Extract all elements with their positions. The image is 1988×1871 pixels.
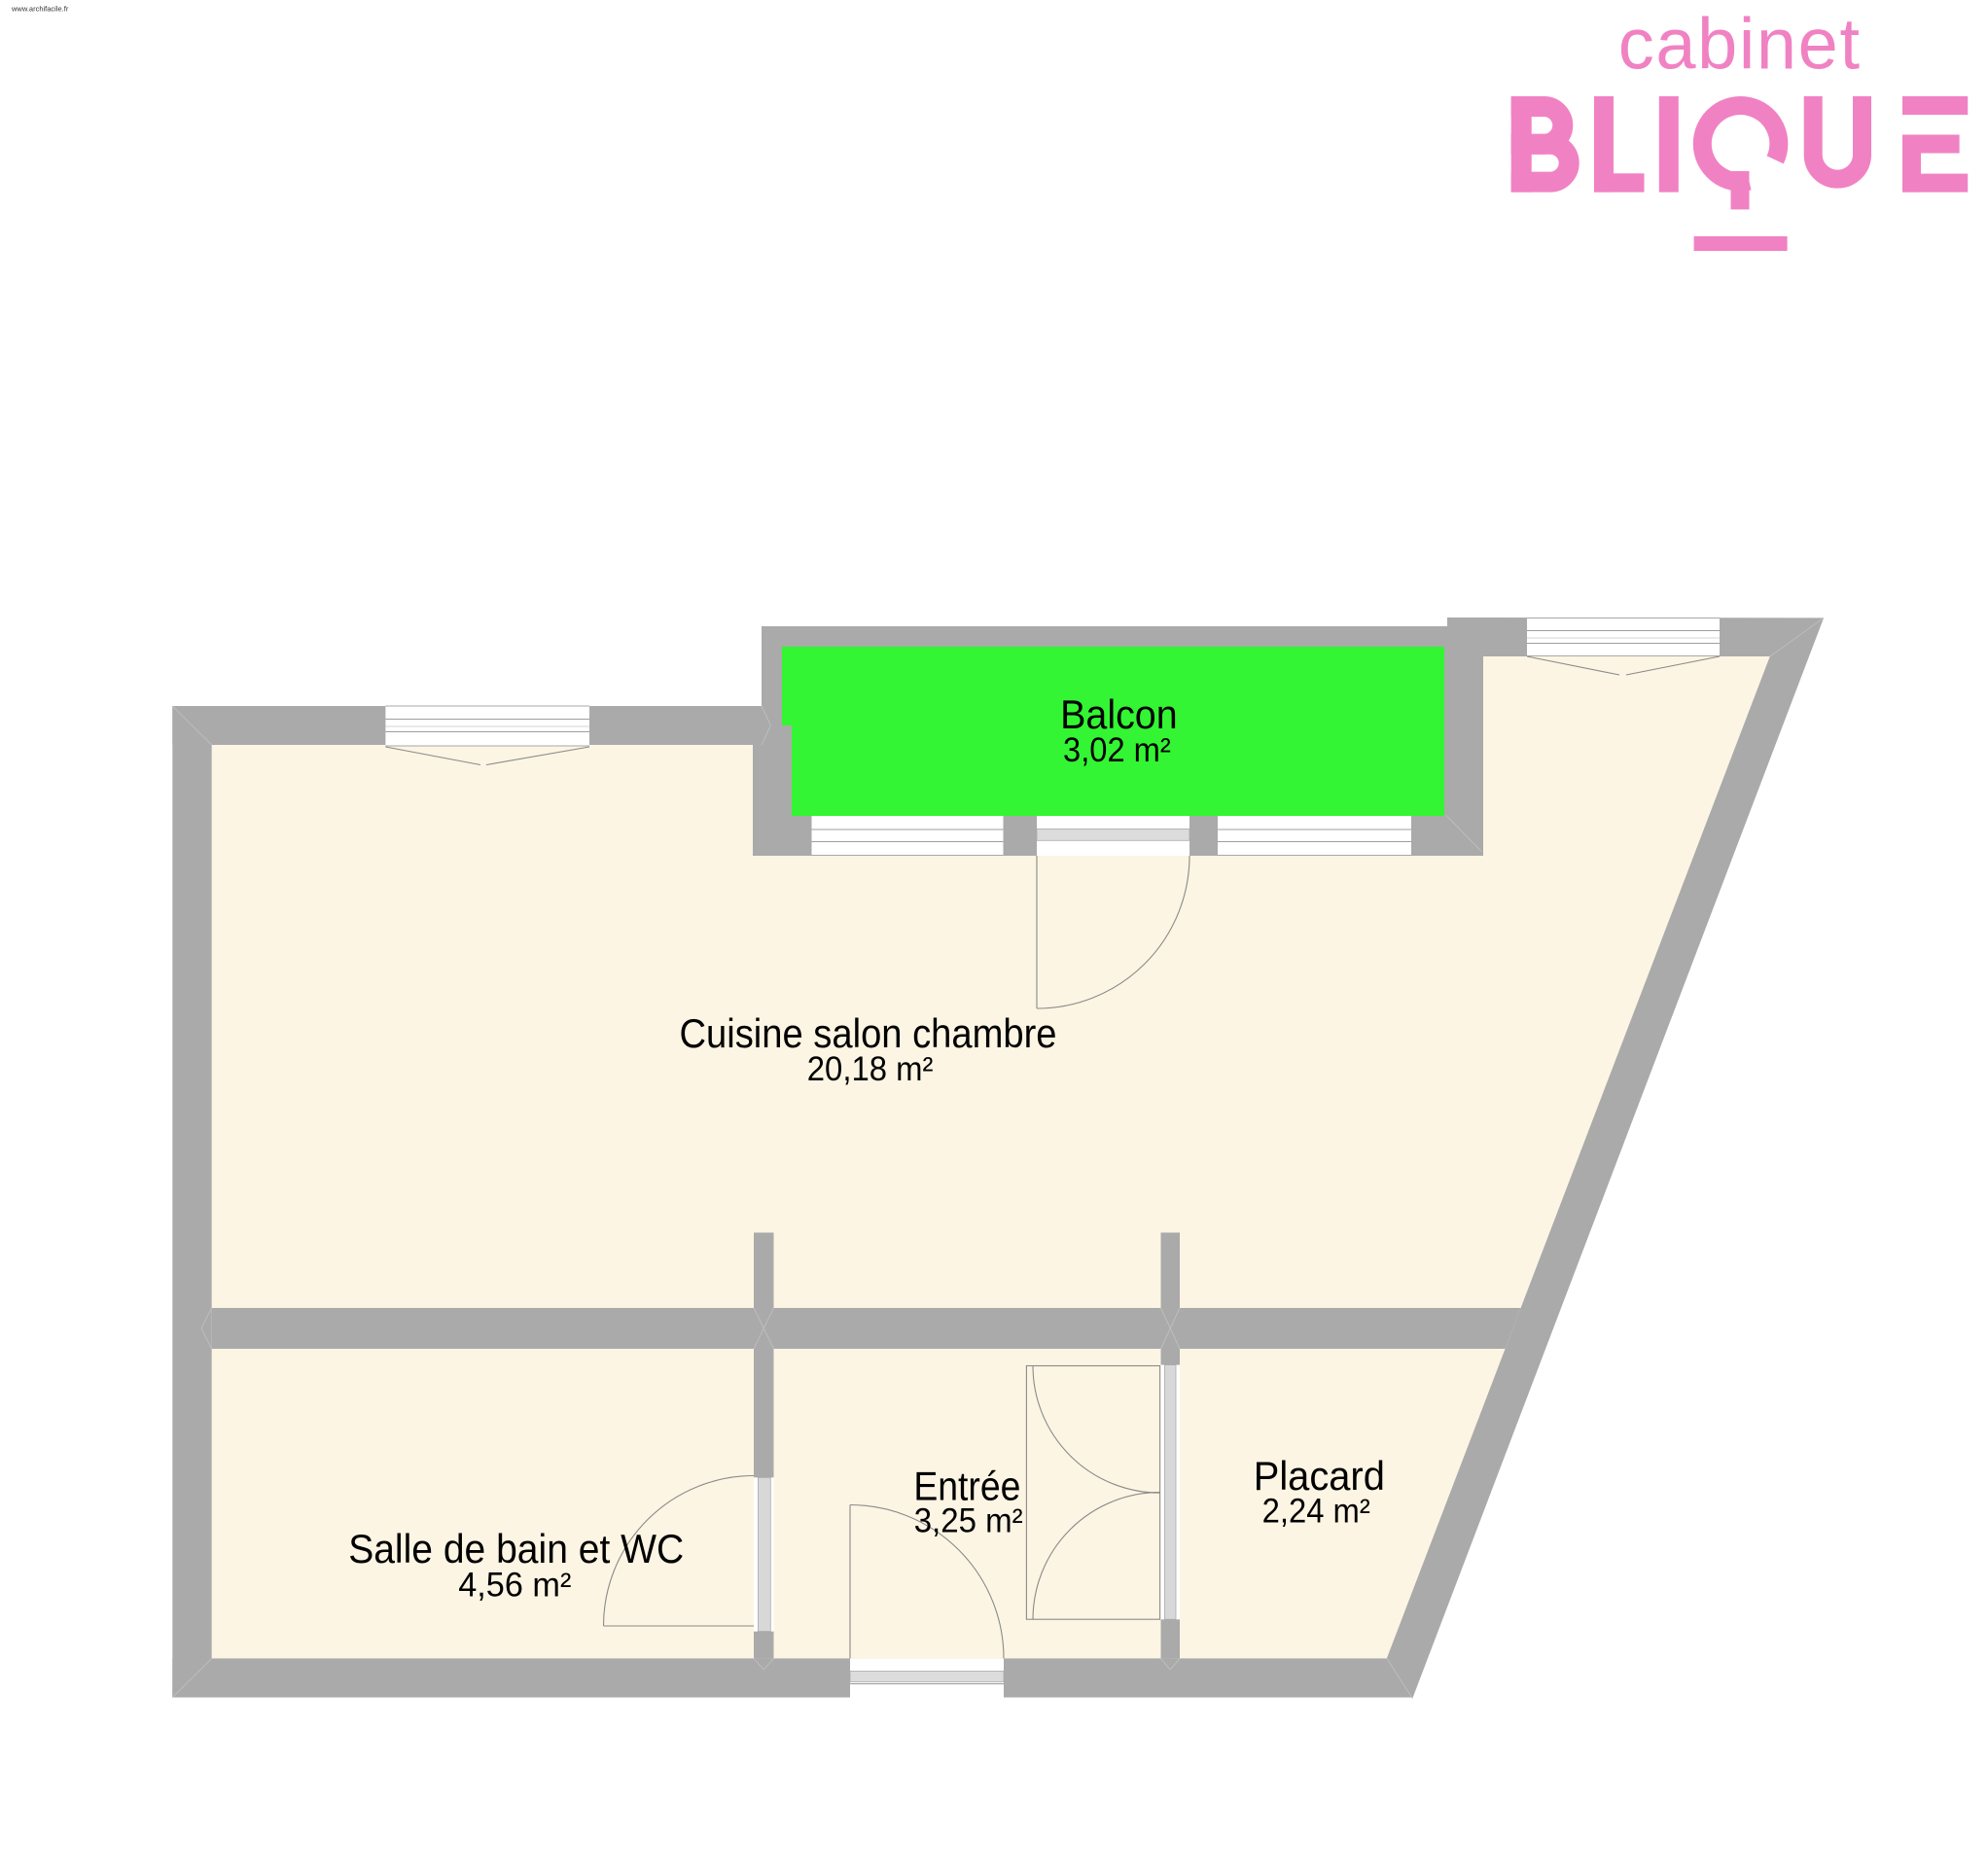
- svg-text:www.archifacile.fr: www.archifacile.fr: [11, 5, 69, 14]
- svg-text:4,56 m²: 4,56 m²: [458, 1567, 571, 1605]
- svg-text:Cuisine salon chambre: Cuisine salon chambre: [680, 1010, 1057, 1056]
- svg-text:20,18 m²: 20,18 m²: [807, 1050, 934, 1088]
- svg-text:3,02 m²: 3,02 m²: [1063, 731, 1171, 769]
- svg-text:Balcon: Balcon: [1060, 691, 1178, 737]
- svg-text:2,24 m²: 2,24 m²: [1262, 1493, 1370, 1531]
- svg-text:cabinet: cabinet: [1618, 4, 1862, 85]
- svg-text:Salle de bain et WC: Salle de bain et WC: [348, 1526, 684, 1571]
- svg-text:3,25 m²: 3,25 m²: [914, 1502, 1023, 1540]
